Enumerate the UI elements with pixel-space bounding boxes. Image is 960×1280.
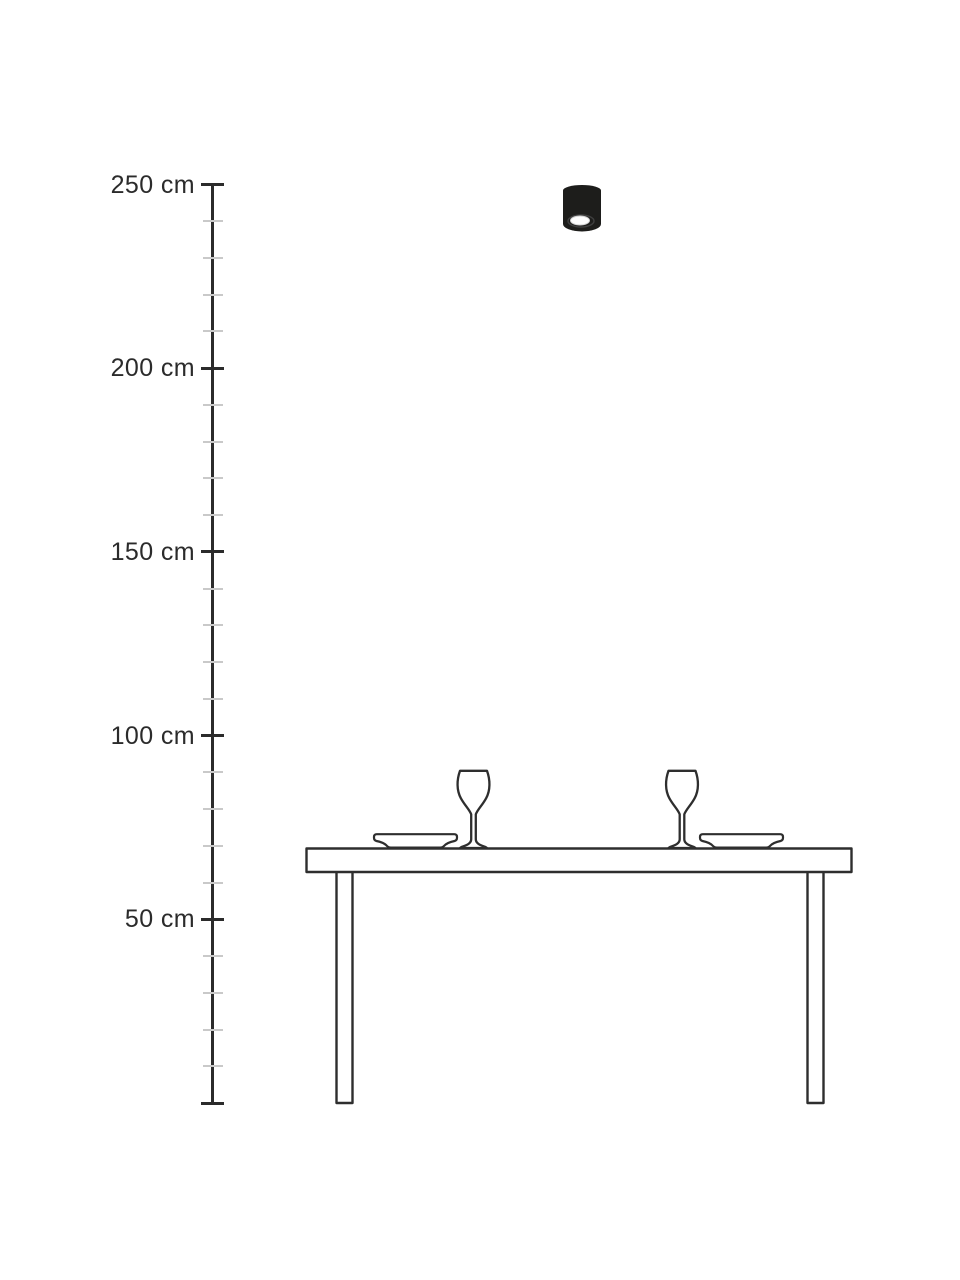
plate-icon <box>700 834 783 847</box>
product-dimension-diagram: 250 cm200 cm150 cm100 cm50 cm <box>0 0 960 1280</box>
ceiling-lamp-icon <box>563 185 601 232</box>
table-leg-left <box>337 870 353 1103</box>
table-leg-right <box>808 870 824 1103</box>
wine-glass-icon <box>666 771 698 848</box>
dining-table-icon <box>307 849 852 1104</box>
lamp-lens <box>571 216 590 225</box>
dimension-illustration <box>0 0 960 1280</box>
wine-glass-icon <box>458 771 490 848</box>
table-top <box>307 849 852 873</box>
plate-icon <box>374 834 457 847</box>
